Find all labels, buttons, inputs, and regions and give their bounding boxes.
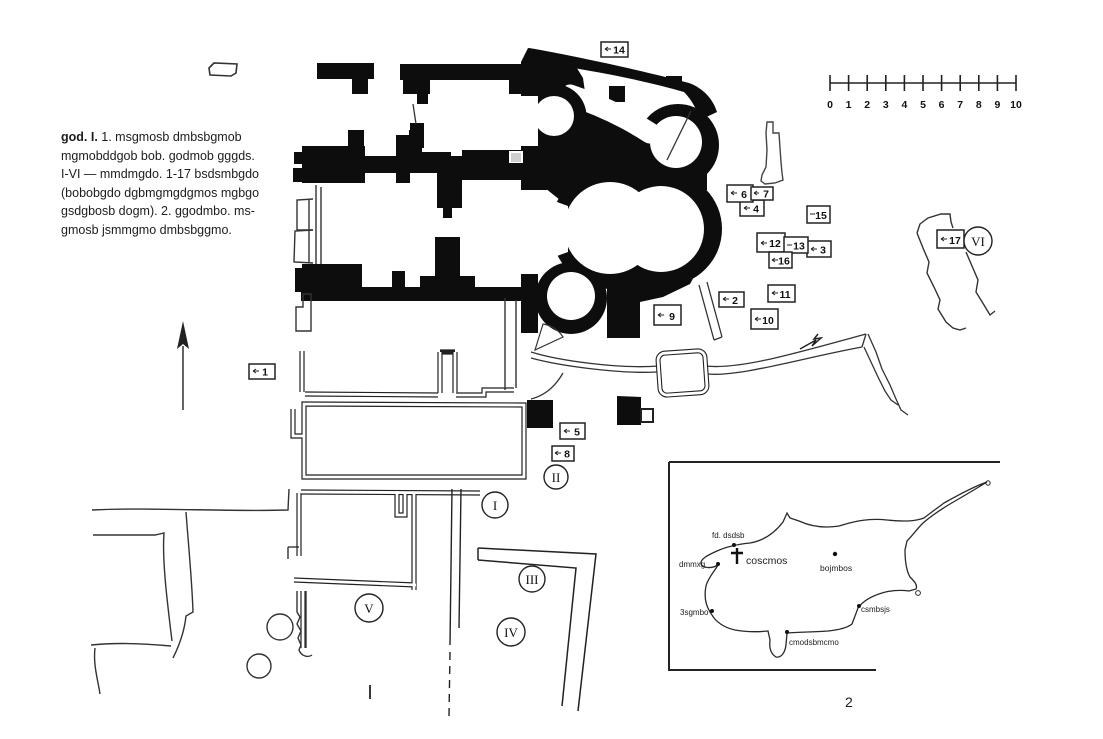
svg-text:3sgmbo: 3sgmbo [680, 608, 709, 617]
svg-text:I-VI — mmdmgdo. 1-17 bsdsmbgdo: I-VI — mmdmgdo. 1-17 bsdsmbgdo [61, 167, 259, 181]
svg-text:5: 5 [920, 99, 926, 111]
svg-text:5: 5 [574, 427, 580, 439]
svg-text:2: 2 [732, 295, 738, 307]
svg-text:9: 9 [669, 311, 675, 323]
svg-text:13: 13 [793, 241, 805, 253]
svg-text:I: I [493, 498, 497, 513]
svg-text:fd. dsdsb: fd. dsdsb [712, 531, 745, 540]
svg-text:0: 0 [827, 99, 833, 111]
svg-text:2: 2 [864, 99, 870, 111]
svg-text:mgmobddgob bob. godmob gggds.: mgmobddgob bob. godmob gggds. [61, 149, 255, 163]
svg-text:dmmxg: dmmxg [679, 560, 705, 569]
svg-text:3: 3 [820, 245, 826, 257]
svg-text:coscmos: coscmos [746, 555, 787, 567]
svg-text:IV: IV [504, 625, 518, 640]
svg-text:14: 14 [613, 45, 625, 57]
svg-text:8: 8 [976, 99, 982, 111]
svg-text:15: 15 [815, 210, 827, 222]
svg-text:6: 6 [939, 99, 945, 111]
svg-text:1: 1 [846, 99, 852, 111]
svg-text:10: 10 [1010, 99, 1022, 111]
svg-text:4: 4 [753, 204, 759, 216]
svg-text:bojmbos: bojmbos [820, 563, 852, 573]
svg-text:17: 17 [949, 235, 961, 247]
svg-text:2: 2 [845, 694, 853, 710]
svg-text:1: 1 [262, 367, 268, 379]
svg-text:7: 7 [957, 99, 963, 111]
svg-text:10: 10 [762, 315, 774, 327]
svg-text:gmosb jsmmgmo dmbsbggmo.: gmosb jsmmgmo dmbsbggmo. [61, 223, 232, 237]
svg-text:gsdgbosb dogm). 2. ggodmbo. ms: gsdgbosb dogm). 2. ggodmbo. ms- [61, 204, 255, 218]
svg-text:9: 9 [994, 99, 1000, 111]
svg-text:cmodsbmcmo: cmodsbmcmo [789, 638, 839, 647]
svg-text:csmbsjs: csmbsjs [861, 605, 890, 614]
svg-text:III: III [526, 572, 539, 587]
svg-text:V: V [364, 601, 374, 616]
svg-text:8: 8 [564, 449, 570, 461]
svg-text:II: II [552, 470, 561, 485]
svg-text:god. I. 1. msgmosb dmbsbgmob: god. I. 1. msgmosb dmbsbgmob [61, 130, 242, 144]
svg-text:7: 7 [763, 189, 769, 201]
svg-text:VI: VI [971, 234, 985, 249]
svg-text:(bobobgdo dgbmgmgdgmos mgbgo: (bobobgdo dgbmgmgdgmos mgbgo [61, 186, 259, 200]
svg-text:12: 12 [769, 238, 781, 250]
svg-text:6: 6 [741, 189, 747, 201]
svg-text:16: 16 [778, 256, 790, 268]
svg-text:11: 11 [779, 289, 790, 301]
svg-text:3: 3 [883, 99, 889, 111]
svg-text:4: 4 [901, 99, 907, 111]
